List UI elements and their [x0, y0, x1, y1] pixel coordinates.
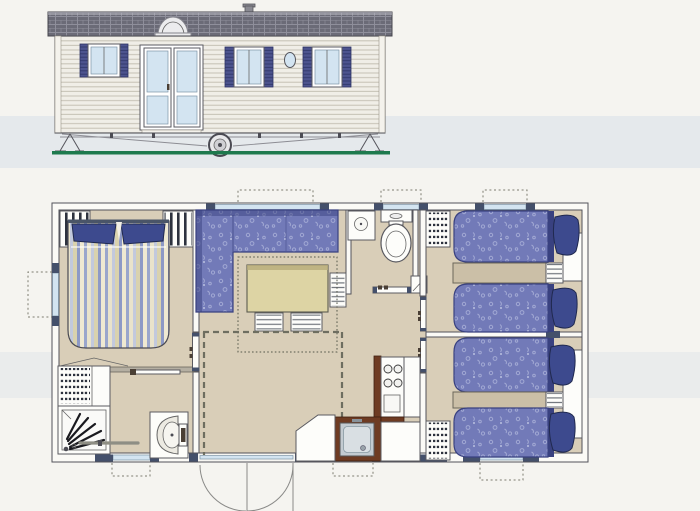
- dining-table: [247, 265, 328, 312]
- corner-washbasin: [348, 211, 375, 240]
- bench-seat: [291, 313, 322, 331]
- bench-seat: [255, 313, 283, 331]
- single-bed: [454, 211, 548, 262]
- pillow: [551, 288, 577, 328]
- shelved-wardrobe: [426, 421, 450, 460]
- counter-edge: [374, 356, 381, 417]
- pillow: [549, 412, 575, 452]
- bedside-shelf: [453, 263, 563, 283]
- floor-plan: [28, 190, 588, 511]
- roof-ridge-highlight: [48, 12, 392, 15]
- door-handle-icon: [167, 84, 170, 90]
- elevation-window-3: [303, 47, 351, 87]
- tall-cabinet: [404, 357, 420, 417]
- bedside-shelf: [453, 392, 563, 408]
- wc-door: [373, 286, 411, 294]
- elevation-view: [48, 4, 392, 156]
- mobile-home-drawing: Scanned mobile-home brochure drawing: si…: [0, 0, 700, 511]
- corner-trim: [379, 36, 385, 133]
- porthole-window-icon: [285, 53, 296, 68]
- single-bed: [454, 338, 548, 392]
- tiled-roof: [48, 12, 392, 36]
- corner-trim: [55, 36, 61, 133]
- tap-icon: [181, 428, 186, 442]
- pillow: [553, 215, 579, 255]
- ground-line: [52, 151, 390, 155]
- pillow: [549, 345, 575, 385]
- double-bed: [68, 220, 169, 349]
- pillow: [121, 224, 165, 244]
- twin-bedroom-front: [453, 211, 582, 332]
- brochure-scan: Scanned mobile-home brochure drawing: si…: [0, 0, 700, 511]
- pillow: [72, 224, 116, 244]
- shelved-wardrobe: [426, 211, 450, 247]
- elevation-french-doors: [140, 45, 203, 133]
- hob-unit: [381, 357, 404, 417]
- corner-shower: [58, 406, 110, 454]
- bathroom-door: [130, 369, 180, 375]
- elevation-window-1: [80, 44, 128, 77]
- toilet: [381, 210, 412, 262]
- elevation-window-2: [225, 47, 273, 87]
- twin-bedroom-rear: [453, 338, 582, 457]
- single-bed: [454, 284, 548, 332]
- single-bed: [454, 408, 548, 457]
- base-cabinet: [381, 422, 420, 461]
- washbasin: [150, 412, 188, 458]
- slatted-shelf: [330, 273, 346, 307]
